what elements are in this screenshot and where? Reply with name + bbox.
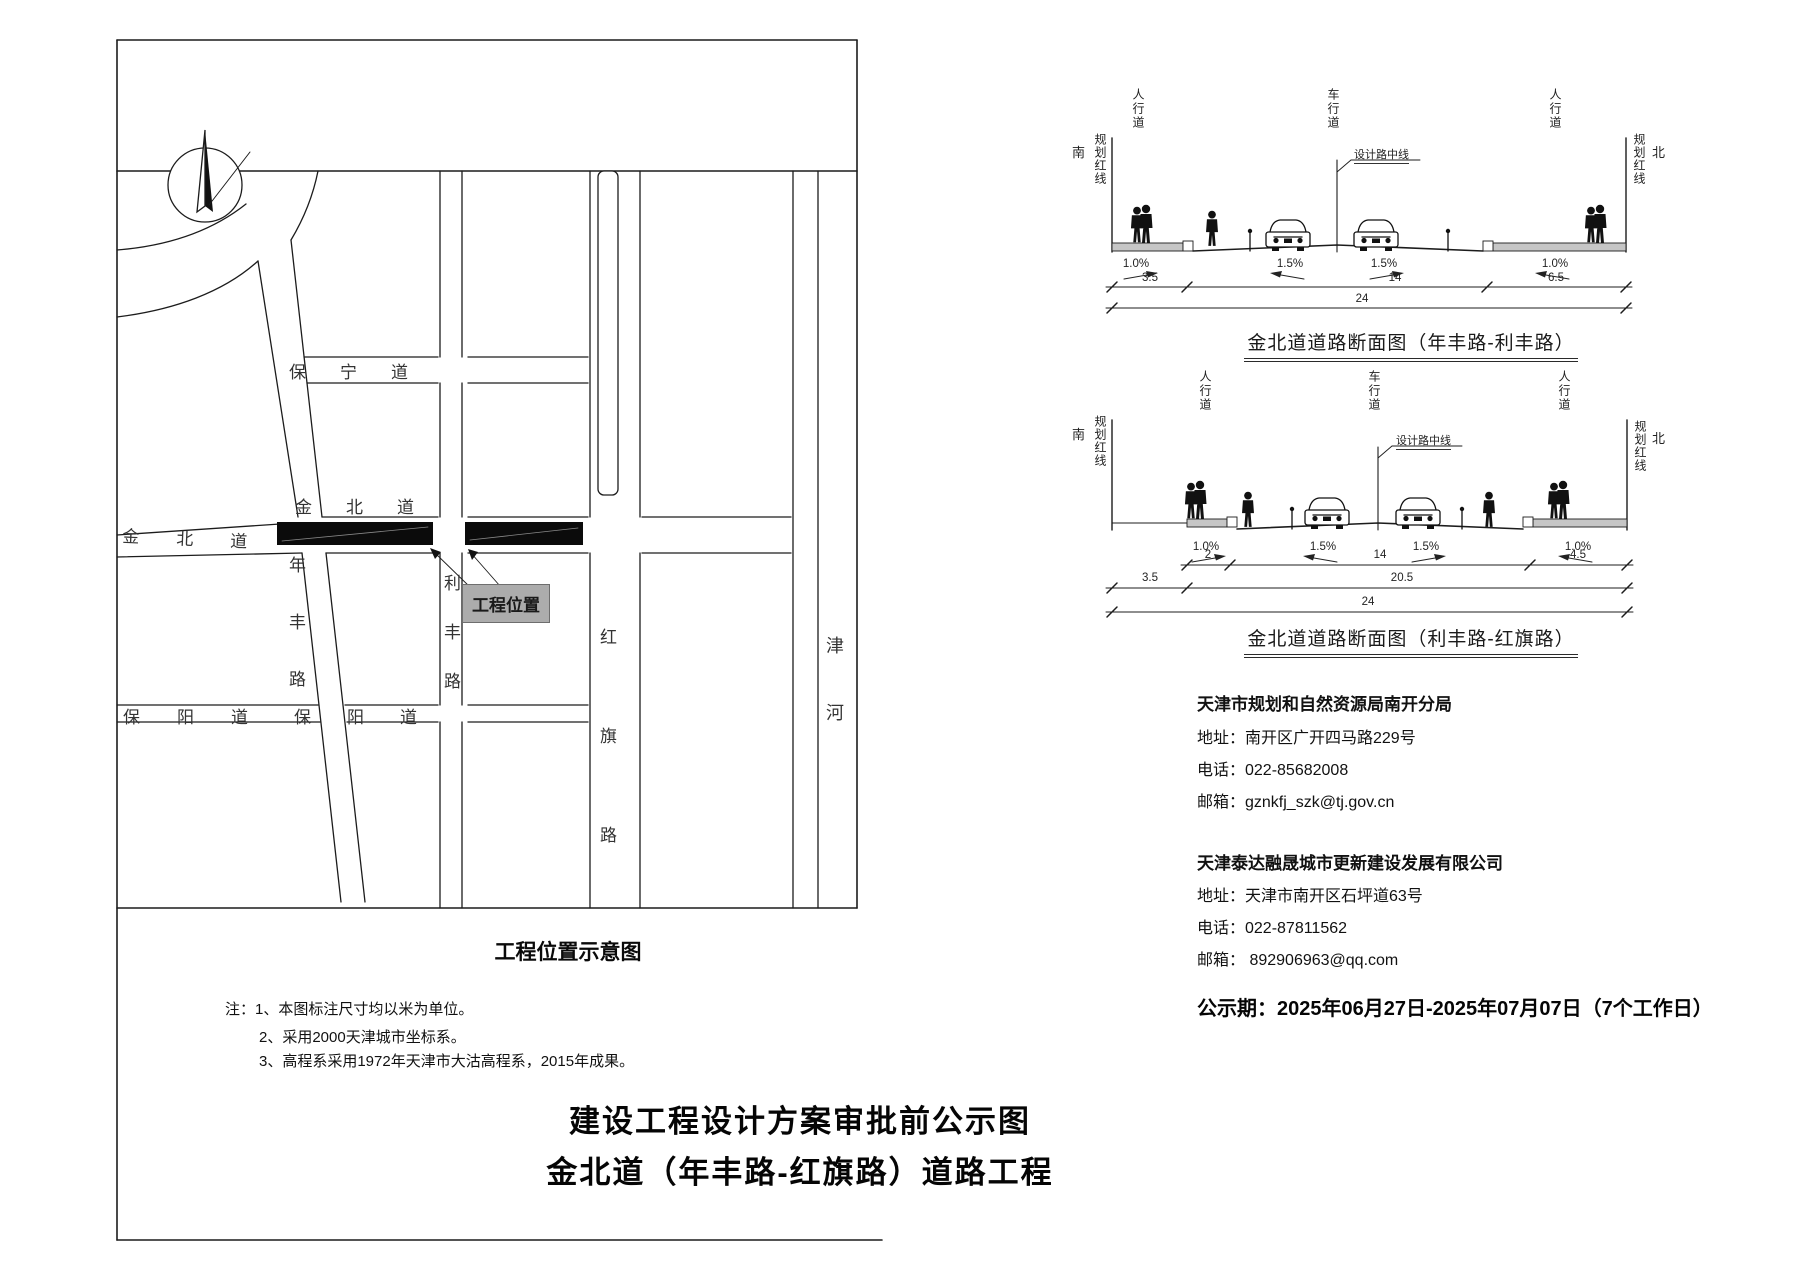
s2-dim-sidewalk-right: 4.5: [1558, 549, 1598, 561]
s1-dim-carriageway: 14: [1375, 272, 1415, 284]
s2-north-label: 北: [1652, 428, 1665, 447]
map-road-baoyang-west: 保阳道: [123, 703, 285, 728]
notice-period: 公示期：2025年06月27日-2025年07月07日（7个工作日）: [1197, 992, 1713, 1021]
s1-dim-total: 24: [1342, 293, 1382, 305]
s2-redline-left-label: 规划红线: [1092, 415, 1109, 467]
s1-dim-sidewalk-left: 3.5: [1130, 272, 1170, 284]
authority-name: 天津市规划和自然资源局南开分局: [1197, 690, 1452, 715]
map-road-nianfeng: 年丰路: [283, 556, 308, 727]
s1-sidewalk-left-label: 人行道: [1130, 88, 1147, 130]
s1-slope-right-outer: 1.0%: [1535, 258, 1575, 270]
location-map: [117, 130, 818, 908]
note-line-3: 3、高程系采用1972年天津市大沽高程系，2015年成果。: [259, 1050, 634, 1071]
authority-phone: 电话：022-85682008: [1197, 756, 1348, 780]
s2-carriageway-label: 车行道: [1366, 370, 1383, 412]
developer-name: 天津泰达融晟城市更新建设发展有限公司: [1197, 849, 1503, 874]
developer-email: 邮箱： 892906963@qq.com: [1197, 946, 1398, 970]
s2-dim-carriageway: 14: [1360, 549, 1400, 561]
s1-redline-right-label: 规划红线: [1631, 133, 1648, 185]
map-road-jinbei-mid: 金北道: [295, 493, 448, 518]
developer-address: 地址：天津市南开区石坪道63号: [1197, 882, 1423, 906]
s1-slope-left-inner: 1.5%: [1270, 258, 1310, 270]
cross-section-2: [1106, 420, 1633, 617]
s2-redline-right-label: 规划红线: [1632, 420, 1649, 472]
project-location-label: 工程位置: [462, 584, 550, 623]
map-caption: 工程位置示意图: [418, 936, 718, 966]
map-road-hongqi: 红旗路: [594, 628, 619, 925]
s1-title: 金北道道路断面图（年丰路-利丰路）: [1244, 328, 1578, 362]
s2-sidewalk-left-label: 人行道: [1197, 370, 1214, 412]
sheet-title-line-2: 金北道（年丰路-红旗路）道路工程: [300, 1147, 1300, 1192]
s2-dim-total: 24: [1348, 596, 1388, 608]
s1-carriageway-label: 车行道: [1325, 88, 1342, 130]
s1-centerline-label: 设计路中线: [1354, 146, 1409, 164]
s1-dim-sidewalk-right: 6.5: [1536, 272, 1576, 284]
project-extent-bars: [277, 522, 583, 545]
north-arrow-icon: [168, 130, 250, 222]
s2-dim-setback: 3.5: [1130, 572, 1170, 584]
s2-sidewalk-right-label: 人行道: [1556, 370, 1573, 412]
notice-sheet: 保宁道 金北道 金北道 保阳道 保阳道 年丰路 利丰路 红旗路 津河 工程位置 …: [0, 0, 1809, 1280]
s2-south-label: 南: [1072, 424, 1085, 443]
s2-slope-right-inner: 1.5%: [1406, 541, 1446, 553]
map-road-lifeng: 利丰路: [438, 574, 463, 721]
s1-sidewalk-right-label: 人行道: [1547, 88, 1564, 130]
s1-south-label: 南: [1072, 142, 1085, 161]
s2-centerline-label: 设计路中线: [1396, 432, 1451, 450]
developer-phone: 电话：022-87811562: [1197, 914, 1347, 938]
s1-north-label: 北: [1652, 142, 1665, 161]
map-road-baoning: 保宁道: [289, 358, 442, 383]
note-line-1: 注：1、本图标注尺寸均以米为单位。: [225, 998, 473, 1019]
s2-dim-inner-total: 20.5: [1382, 572, 1422, 584]
s1-slope-right-inner: 1.5%: [1364, 258, 1404, 270]
map-river-jinhe: 津河: [821, 636, 847, 770]
s2-dim-walk: 2: [1188, 549, 1228, 561]
authority-email: 邮箱：gznkfj_szk@tj.gov.cn: [1197, 788, 1394, 812]
authority-address: 地址：南开区广开四马路229号: [1197, 724, 1416, 748]
map-road-baoyang-mid: 保阳道: [294, 703, 453, 728]
sheet-title-line-1: 建设工程设计方案审批前公示图: [300, 1096, 1300, 1141]
s2-title: 金北道道路断面图（利丰路-红旗路）: [1244, 624, 1578, 658]
s1-slope-left-outer: 1.0%: [1116, 258, 1156, 270]
s1-redline-left-label: 规划红线: [1092, 133, 1109, 185]
s2-slope-left-inner: 1.5%: [1303, 541, 1343, 553]
note-line-2: 2、采用2000天津城市坐标系。: [259, 1026, 466, 1047]
cross-section-1: [1106, 138, 1632, 313]
